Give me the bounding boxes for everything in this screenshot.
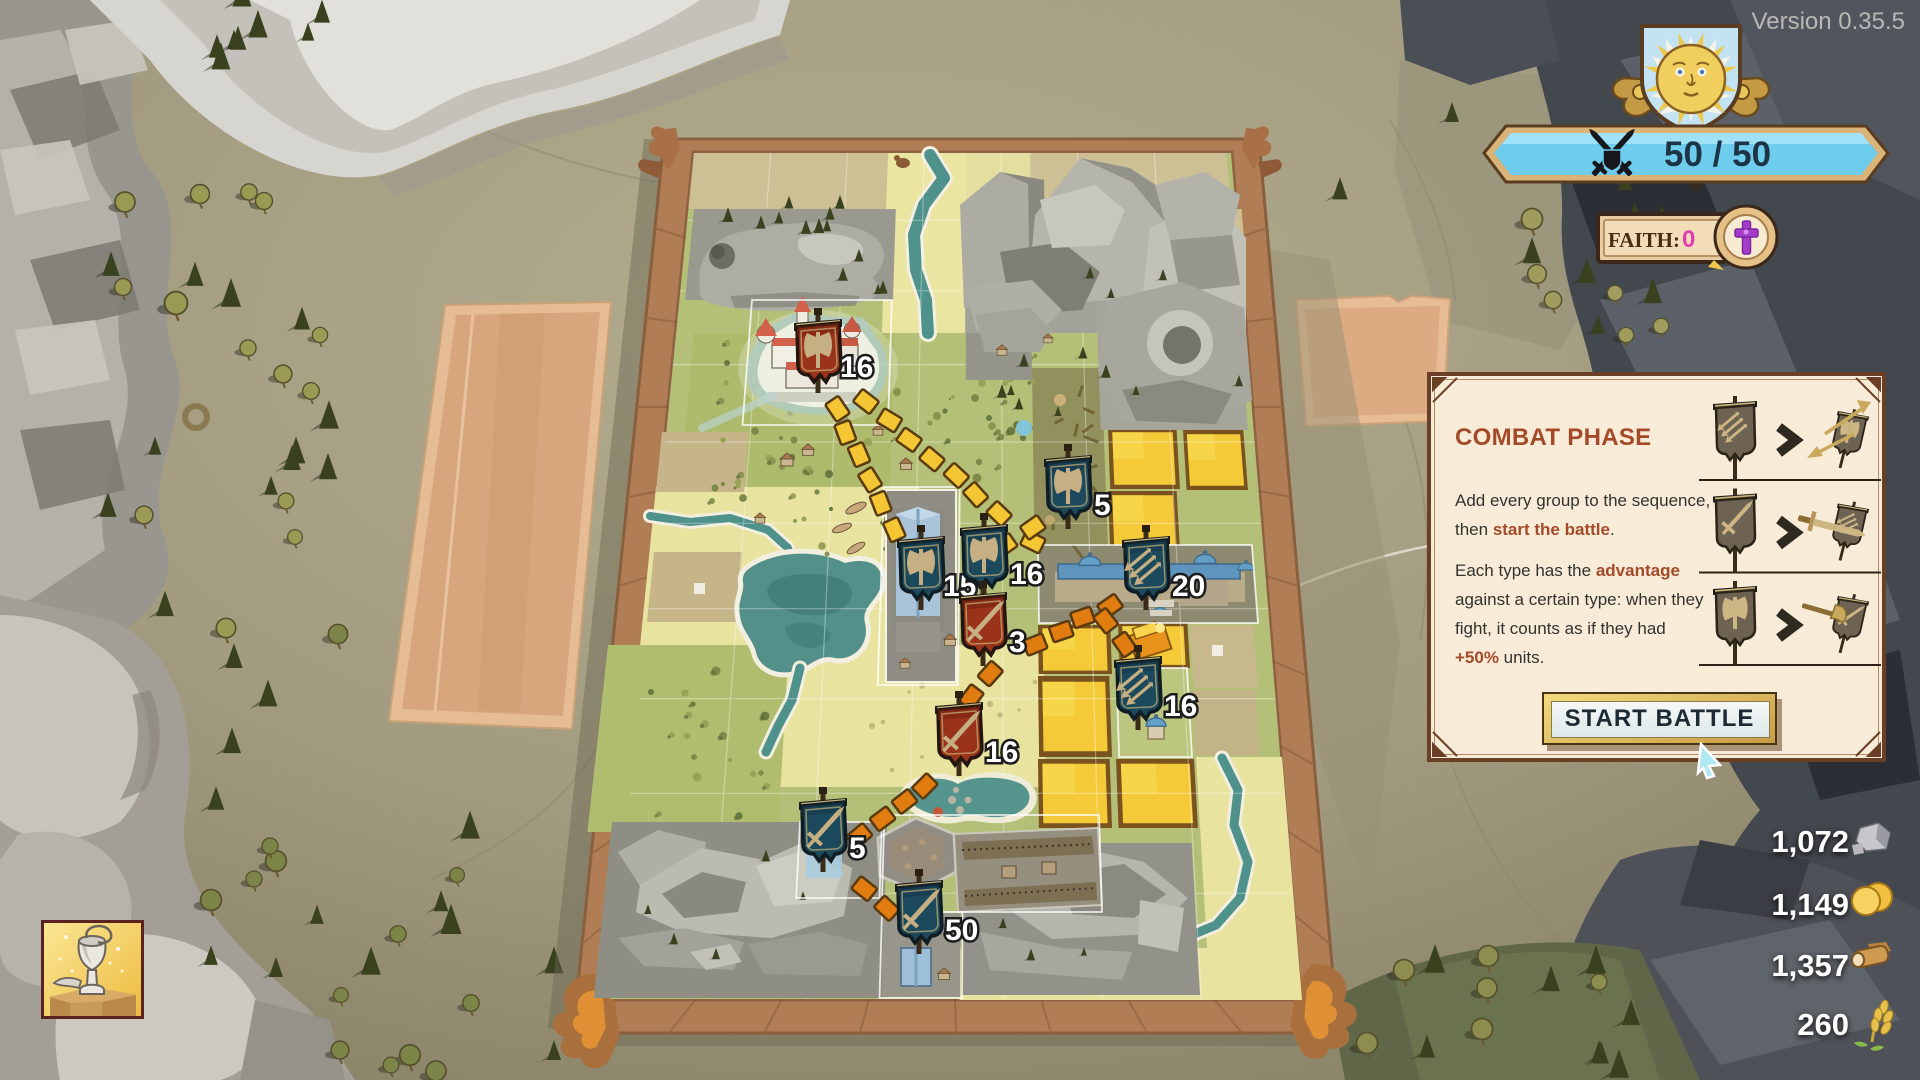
svg-text:20: 20 xyxy=(1172,570,1205,603)
svg-text:5: 5 xyxy=(849,832,866,865)
svg-text:0: 0 xyxy=(1682,226,1695,253)
svg-text:16: 16 xyxy=(1164,690,1197,723)
svg-text:16: 16 xyxy=(840,351,873,384)
svg-text:FAITH:: FAITH: xyxy=(1608,228,1680,252)
svg-text:5: 5 xyxy=(1094,489,1111,522)
svg-text:16: 16 xyxy=(1010,558,1043,591)
svg-text:50 / 50: 50 / 50 xyxy=(1664,135,1771,174)
svg-text:16: 16 xyxy=(985,736,1018,769)
svg-text:3: 3 xyxy=(1009,626,1026,659)
svg-text:50: 50 xyxy=(945,914,978,947)
